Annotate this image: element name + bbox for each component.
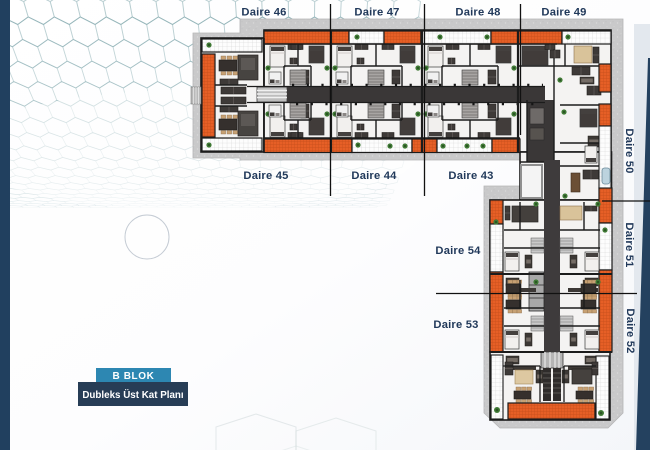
svg-text:Dubleks Üst Kat Planı: Dubleks Üst Kat Planı xyxy=(82,390,184,401)
svg-text:Daire 53: Daire 53 xyxy=(433,319,478,331)
svg-text:Daire 47: Daire 47 xyxy=(354,7,399,19)
svg-text:Daire 52: Daire 52 xyxy=(624,308,636,353)
svg-text:Daire 50: Daire 50 xyxy=(623,128,635,173)
svg-text:Daire 44: Daire 44 xyxy=(351,170,397,182)
svg-text:Daire 48: Daire 48 xyxy=(455,7,500,19)
svg-text:Daire 46: Daire 46 xyxy=(241,7,286,19)
svg-text:Daire 49: Daire 49 xyxy=(541,7,586,19)
svg-text:Daire 51: Daire 51 xyxy=(623,222,635,267)
svg-text:B BLOK: B BLOK xyxy=(113,371,155,382)
svg-text:Daire 45: Daire 45 xyxy=(243,170,288,182)
svg-text:Daire 54: Daire 54 xyxy=(435,245,481,257)
svg-text:Daire 43: Daire 43 xyxy=(448,170,493,182)
